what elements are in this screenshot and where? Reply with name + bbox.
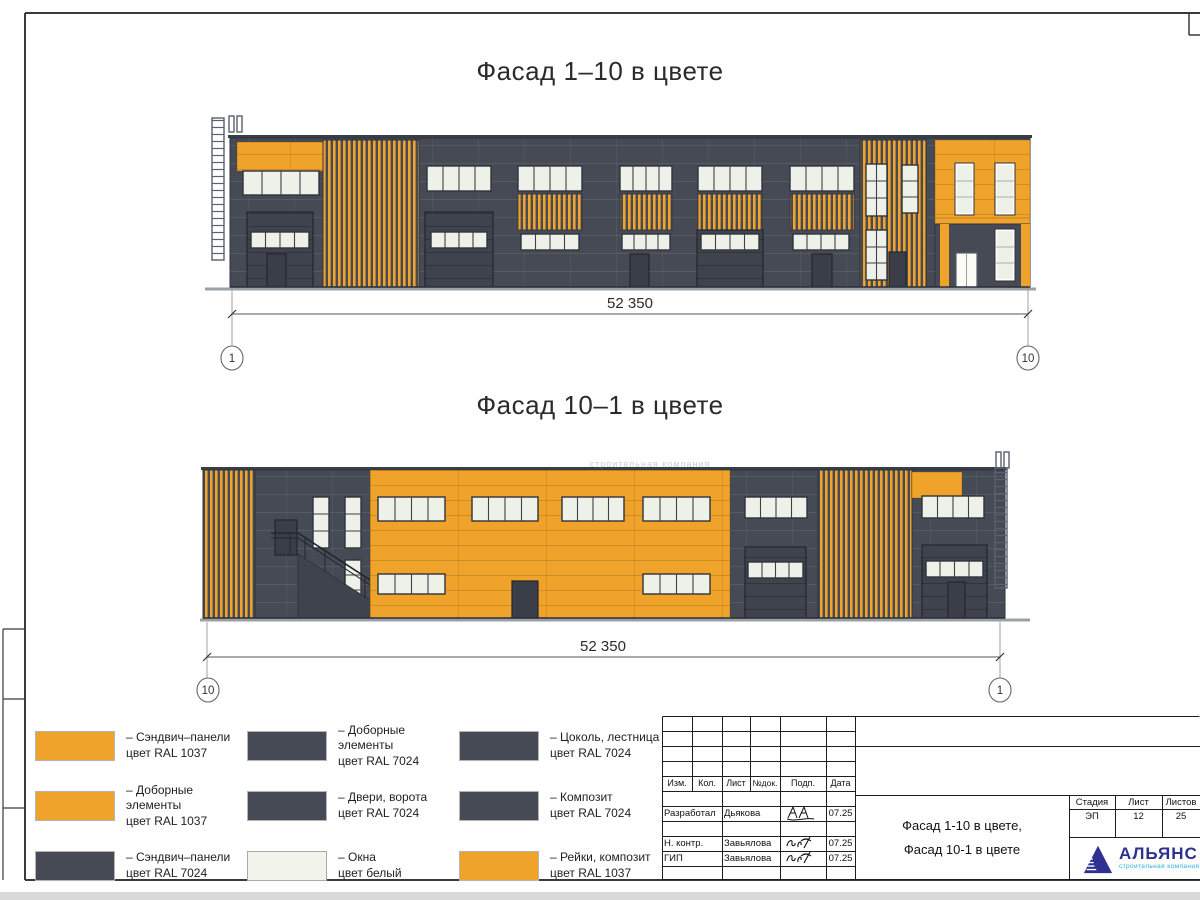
row-name: Дьякова: [724, 806, 780, 821]
legend-item: – Сэндвич–панелицвет RAL 1037: [35, 716, 247, 776]
sheet-header: Лист: [1115, 795, 1162, 810]
legend-swatch-orange: [35, 791, 115, 821]
legend-swatch-dark: [35, 851, 115, 881]
legend-item: – Двери, воротацвет RAL 7024: [247, 776, 459, 836]
slat-panel-left: [203, 470, 255, 618]
row-date: 07.25: [826, 806, 855, 821]
row-name: Завьялова: [724, 851, 780, 866]
signature: [784, 835, 824, 851]
slat-panel-right: [818, 470, 912, 618]
legend-swatch-dark: [247, 791, 327, 821]
sheets-total-header: Листов: [1162, 795, 1200, 810]
logo-name: АЛЬЯНС: [1119, 845, 1199, 862]
logo-triangle-icon: [1083, 844, 1113, 874]
end-section: [935, 140, 1030, 288]
legend-swatch-dark: [459, 731, 539, 761]
facade-1-10-drawing: [203, 110, 1038, 295]
axis-marker-left: 10: [202, 685, 215, 697]
facade-1-10-title: Фасад 1–10 в цвете: [0, 56, 1200, 87]
legend-label: – Рейки, композитцвет RAL 1037: [550, 850, 651, 881]
bay-3: [518, 166, 582, 250]
dimension-label: 52 350: [607, 295, 653, 312]
slat-tower: [860, 140, 926, 288]
signature: [784, 804, 824, 822]
legend-item: – Сэндвич–панелицвет RAL 7024: [35, 836, 247, 896]
legend-label: – Сэндвич–панелицвет RAL 1037: [126, 730, 230, 761]
facade-10-1-drawing: строительная компания: [195, 441, 1035, 626]
row-role: Разработал: [664, 806, 722, 821]
legend-label: – Композитцвет RAL 7024: [550, 790, 631, 821]
row-role: ГИП: [664, 851, 722, 866]
title-block: Изм. Кол. Лист №док. Подп. Дата Разработ…: [662, 716, 1200, 880]
axis-marker-left: 1: [229, 353, 235, 365]
legend-item: – Рейки, композитцвет RAL 1037: [459, 836, 665, 896]
stage-header: Стадия: [1069, 795, 1115, 810]
legend-label: – Доборные элементыцвет RAL 1037: [126, 783, 247, 830]
facade-10-1-title: Фасад 10–1 в цвете: [0, 390, 1200, 421]
dimension-facade-1-10: 52 350 1 10: [195, 288, 1040, 378]
bottom-strip: [0, 892, 1200, 900]
legend-item: – Доборные элементыцвет RAL 7024: [247, 716, 459, 776]
row-date: 07.25: [826, 836, 855, 851]
col-header-ndoc: №док.: [750, 776, 780, 791]
sheet-value: 12: [1115, 809, 1162, 837]
legend-swatch-orange: [459, 851, 539, 881]
sheets-total-value: 25: [1162, 809, 1200, 837]
orange-section: [370, 470, 730, 618]
dimension-facade-10-1: 52 350 10 1: [195, 618, 1040, 710]
legend-swatch-dark: [459, 791, 539, 821]
bay-2: [425, 166, 493, 288]
watermark-text: строительная компания: [590, 459, 711, 469]
col-header-izm: Изм.: [662, 776, 692, 791]
row-role: Н. контр.: [664, 836, 722, 851]
legend-label: – Доборные элементыцвет RAL 7024: [338, 723, 459, 770]
legend-swatch-white: [247, 851, 327, 881]
logo-subtitle: строительная компания: [1119, 862, 1199, 871]
legend-label: – Цоколь, лестницацвет RAL 7024: [550, 730, 659, 761]
row-date: 07.25: [826, 851, 855, 866]
signature: [784, 850, 824, 866]
dimension-label: 52 350: [580, 638, 626, 655]
gate-section: [745, 497, 807, 618]
slat-panel-large: [323, 140, 419, 288]
bay-5: [697, 166, 763, 288]
legend-item: – Окнацвет белый: [247, 836, 459, 896]
ladder: [995, 452, 1009, 588]
legend-swatch-orange: [35, 731, 115, 761]
legend-label: – Сэндвич–панелицвет RAL 7024: [126, 850, 230, 881]
legend-label: – Окнацвет белый: [338, 850, 402, 881]
document-title: Фасад 1-10 в цвете, Фасад 10-1 в цвете: [855, 795, 1069, 880]
legend-item: – Композитцвет RAL 7024: [459, 776, 665, 836]
color-legend: – Сэндвич–панелицвет RAL 1037 – Доборные…: [35, 716, 665, 896]
legend-swatch-dark: [247, 731, 327, 761]
axis-marker-right: 10: [1022, 353, 1035, 365]
col-header-kol: Кол.: [692, 776, 722, 791]
col-header-list: Лист: [722, 776, 750, 791]
legend-label: – Двери, воротацвет RAL 7024: [338, 790, 427, 821]
col-header-data: Дата: [826, 776, 855, 791]
col-header-podp: Подп.: [780, 776, 826, 791]
company-logo: АЛЬЯНС строительная компания: [1069, 837, 1200, 880]
legend-item: – Цоколь, лестницацвет RAL 7024: [459, 716, 665, 776]
legend-item: – Доборные элементыцвет RAL 1037: [35, 776, 247, 836]
stage-value: ЭП: [1069, 809, 1115, 837]
bay-1: [237, 142, 323, 288]
row-name: Завьялова: [724, 836, 780, 851]
axis-marker-right: 1: [997, 685, 1003, 697]
